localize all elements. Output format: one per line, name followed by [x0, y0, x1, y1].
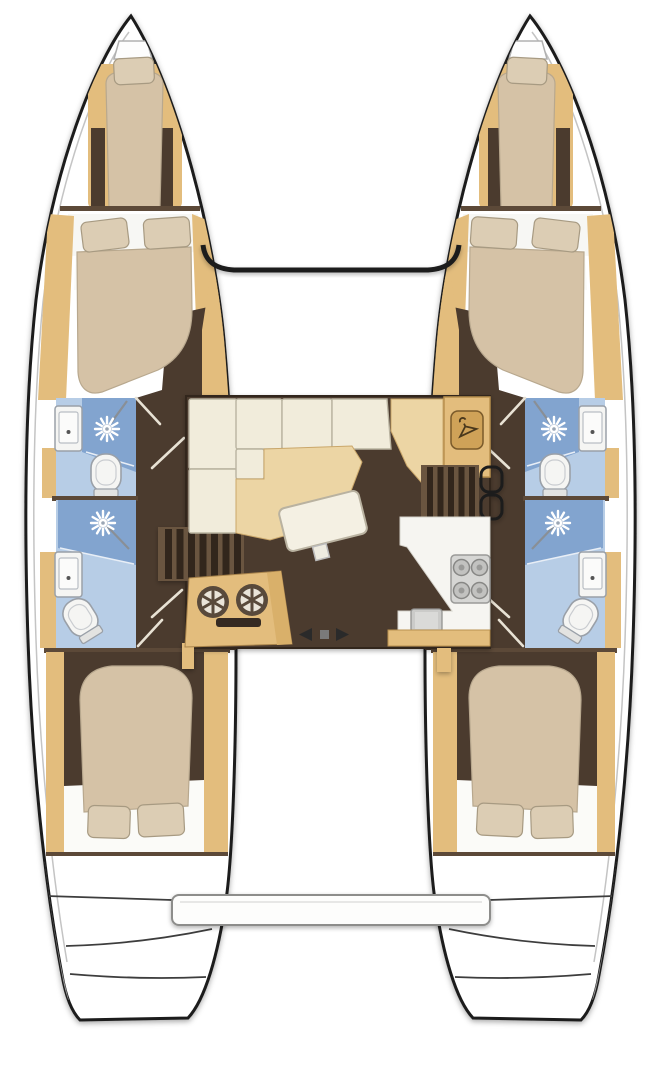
oven-slot — [216, 618, 261, 627]
galley-sink-basin — [415, 612, 438, 629]
saloon — [158, 396, 502, 672]
counter-front — [388, 630, 490, 646]
forward-crossbeam — [203, 245, 459, 270]
port-companionway-stairs — [158, 527, 244, 581]
counter-stub — [437, 648, 451, 672]
starboard-companionway-stairs — [421, 465, 479, 520]
stove-burner-icon — [451, 555, 490, 603]
sink-console — [185, 571, 292, 647]
catamaran-plan-svg: Catamaran interior layout plan — top-dow… — [0, 0, 661, 1080]
floor-plan-canvas: Catamaran interior layout plan — top-dow… — [0, 0, 661, 1080]
table-leg — [313, 544, 330, 561]
door-track-dot — [320, 630, 329, 639]
aft-bench-platform — [172, 895, 490, 925]
